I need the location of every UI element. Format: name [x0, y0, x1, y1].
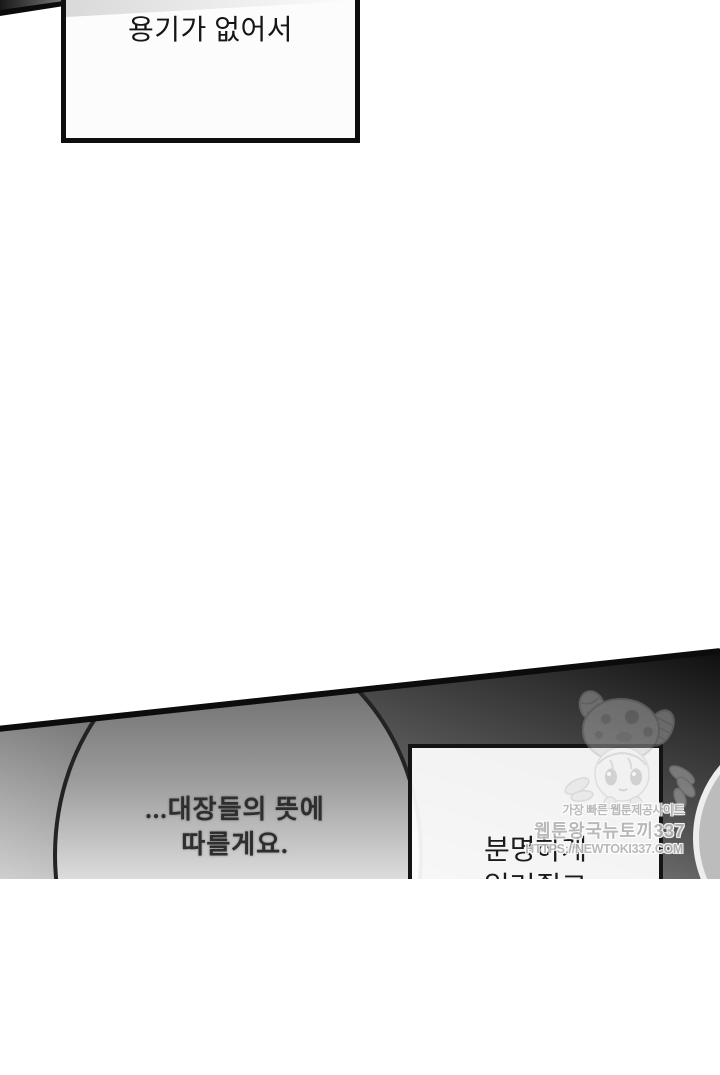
watermark-mascot-icon: [552, 690, 702, 818]
speech-line-clipped: 일러줬고: [412, 866, 659, 903]
speech-line: 따를게요.: [75, 827, 395, 862]
speech-box-top: 용기가 없어서: [61, 0, 360, 143]
watermark-tagline: 가장 빠른 웹툰제공사이트: [562, 801, 684, 818]
speech-line: ...대장들의 뜻에: [75, 792, 395, 827]
watermark-site-name: 웹툰왕국뉴토끼337: [534, 817, 685, 843]
bottom-panel: ...대장들의 뜻에 따를게요. 분명하게 일러줬고: [0, 640, 720, 879]
speech-bubble-left-text: ...대장들의 뜻에 따를게요.: [75, 792, 395, 862]
watermark-url: HTTPS://NEWTOKI337.COM: [525, 842, 683, 856]
